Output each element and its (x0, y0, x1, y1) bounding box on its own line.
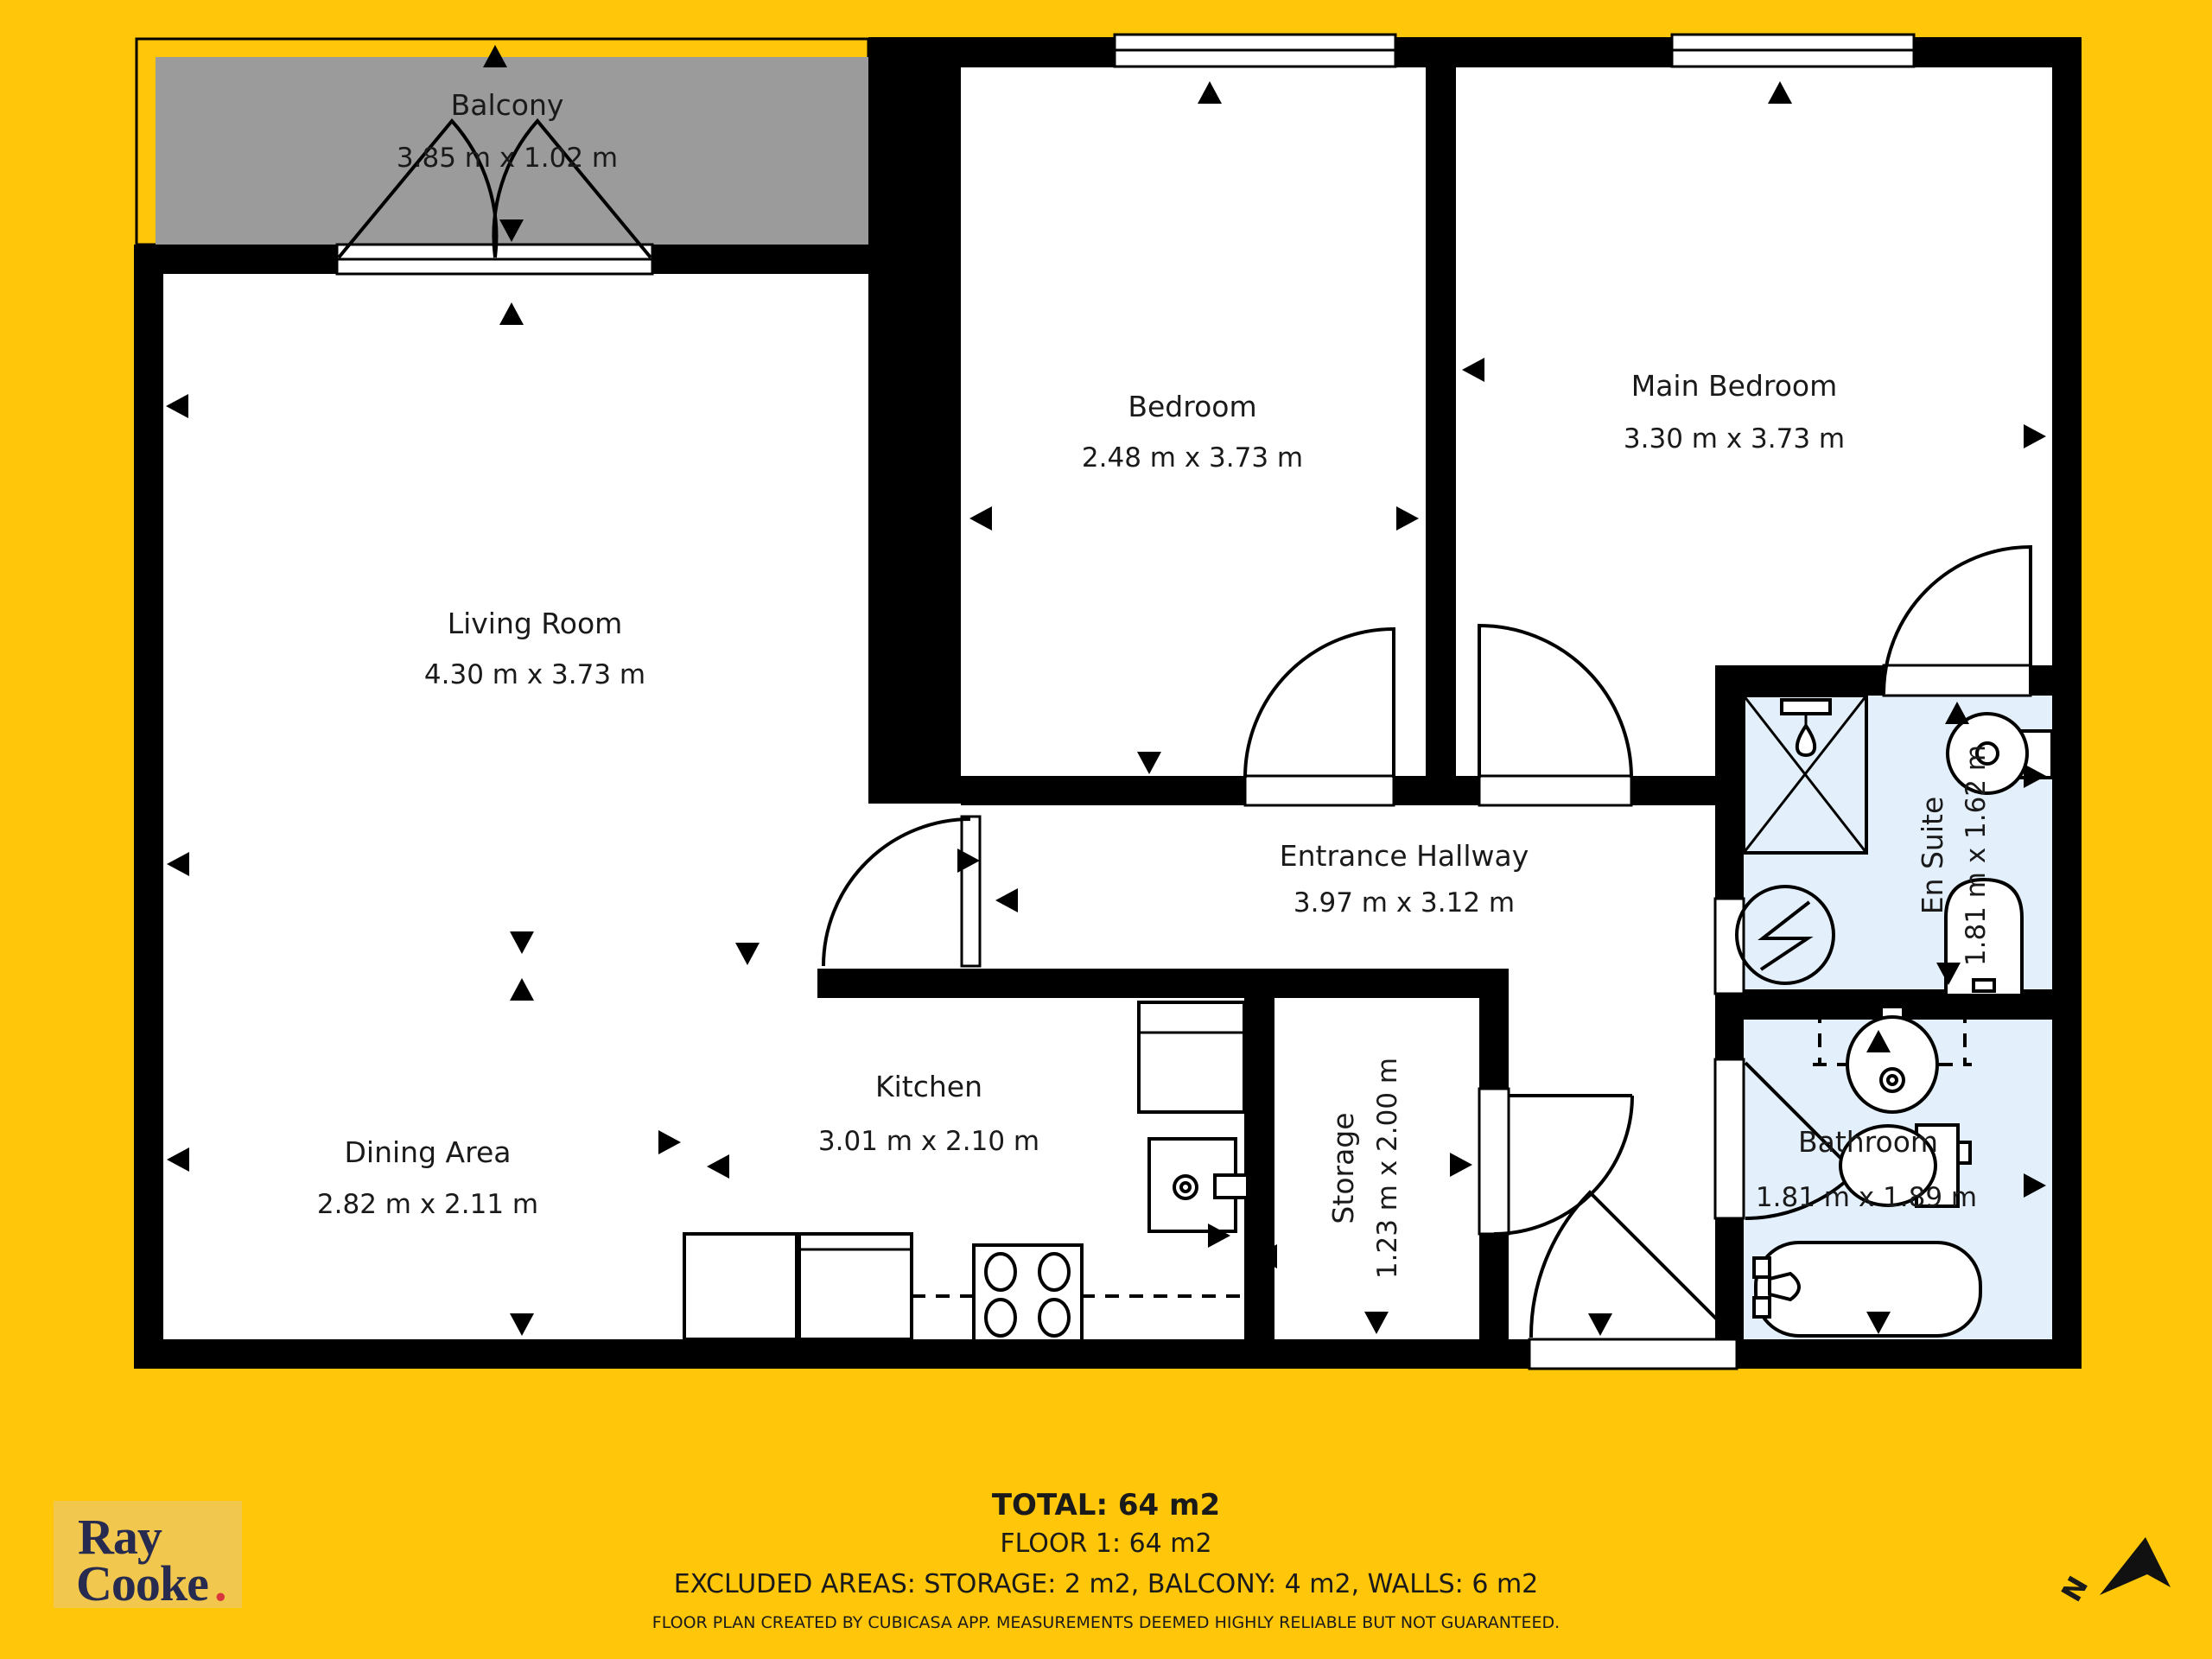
bathroom-dims: 1.81 m x 1.89 m (1756, 1182, 1977, 1213)
kitchen-dims: 3.01 m x 2.10 m (818, 1126, 1039, 1157)
total-area-text: TOTAL: 64 m2 (992, 1488, 1220, 1522)
kitchen-sink-icon (1149, 1139, 1248, 1231)
disclaimer-text: FLOOR PLAN CREATED BY CUBICASA APP. MEAS… (652, 1613, 1560, 1632)
balcony-dims: 3.85 m x 1.02 m (397, 143, 618, 174)
en-suite-label: En Suite (1916, 797, 1949, 915)
living-room-label: Living Room (448, 607, 623, 640)
floor-plan-page: Balcony 3.85 m x 1.02 m Bedroom 2.48 m x… (0, 0, 2212, 1659)
dining-area-dims: 2.82 m x 2.11 m (317, 1189, 538, 1220)
logo-dot: . (214, 1555, 227, 1611)
floor-area-text: FLOOR 1: 64 m2 (1000, 1529, 1211, 1559)
en-suite-dims: 1.81 m x 1.62 m (1961, 745, 1992, 966)
stove-icon (974, 1245, 1082, 1341)
bedroom-label: Bedroom (1128, 390, 1256, 423)
balcony-label: Balcony (451, 88, 564, 122)
kitchen-label: Kitchen (875, 1070, 982, 1103)
bathroom-label: Bathroom (1798, 1125, 1938, 1159)
main-bedroom-label: Main Bedroom (1631, 369, 1838, 403)
compass-label: N (2055, 1571, 2094, 1607)
living-room-dims: 4.30 m x 3.73 m (424, 659, 645, 690)
footer: TOTAL: 64 m2 FLOOR 1: 64 m2 EXCLUDED ARE… (652, 1488, 1560, 1632)
north-arrow-icon: N (2055, 1537, 2171, 1607)
bedroom-dims: 2.48 m x 3.73 m (1082, 442, 1303, 474)
bedroom-window (1115, 35, 1395, 67)
main-bedroom-window (1672, 35, 1914, 67)
storage-dims: 1.23 m x 2.00 m (1372, 1058, 1403, 1279)
hallway-dims: 3.97 m x 3.12 m (1294, 887, 1515, 918)
ray-cooke-logo: Ray Cooke . (54, 1501, 242, 1611)
floor-plan-canvas: Balcony 3.85 m x 1.02 m Bedroom 2.48 m x… (0, 0, 2212, 1659)
dining-area-label: Dining Area (345, 1135, 512, 1169)
balcony-area (137, 39, 868, 245)
main-bedroom-dims: 3.30 m x 3.73 m (1624, 423, 1845, 454)
hallway-label: Entrance Hallway (1280, 839, 1529, 873)
logo-line2: Cooke (76, 1555, 208, 1611)
bathtub-icon (1754, 1243, 1980, 1336)
storage-label: Storage (1326, 1112, 1360, 1224)
excluded-areas-text: EXCLUDED AREAS: STORAGE: 2 m2, BALCONY: … (674, 1569, 1539, 1599)
